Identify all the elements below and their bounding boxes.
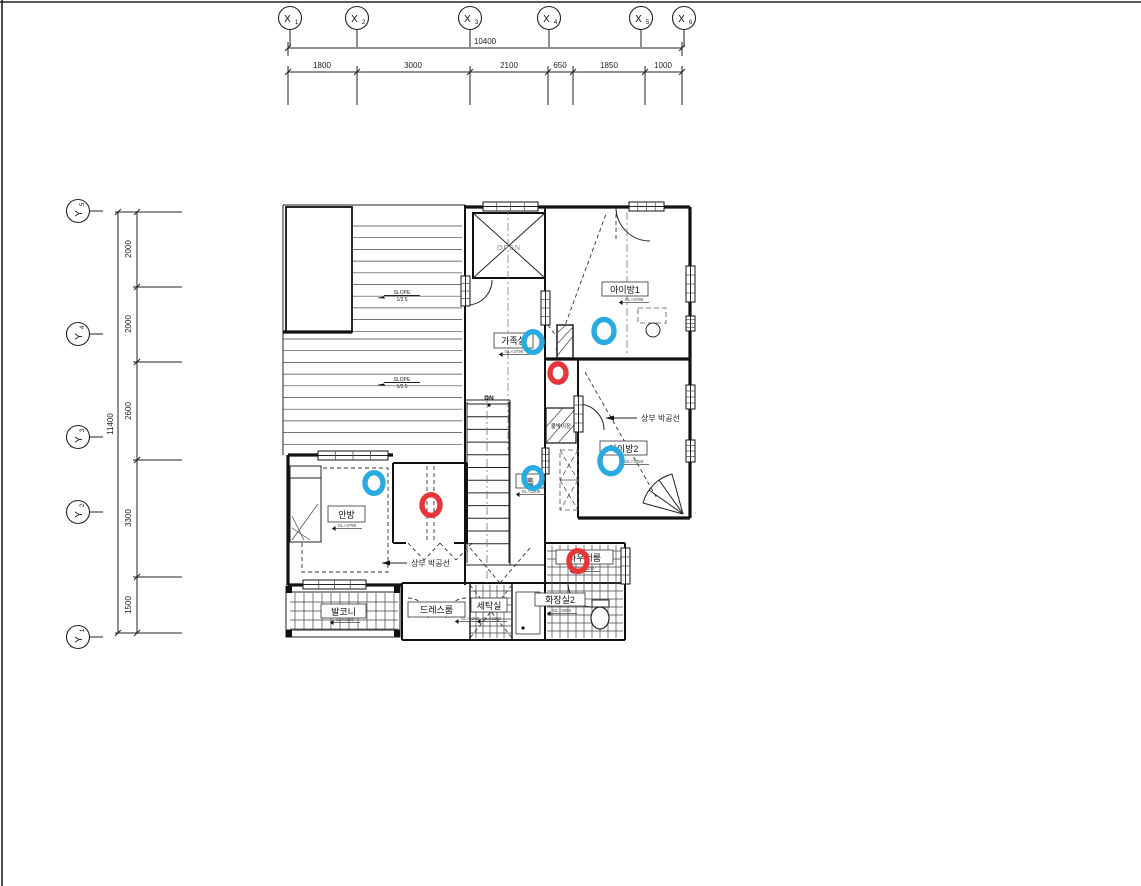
svg-text:Y: Y [74,210,85,217]
grid-bubble-x2: X2 [346,7,369,30]
gable-annotation-2: 상부 박공선 [382,558,450,568]
x-dim-seg-2: 3000 [404,61,422,70]
balcony-post [286,586,292,593]
closet-dashed [560,450,578,480]
svg-text:Y: Y [74,636,85,643]
svg-text:GL+3200: GL+3200 [461,616,480,621]
svg-text:X: X [635,14,642,25]
grid-bubble-y2: Y2 [67,501,90,524]
svg-text:드레스룸: 드레스룸 [420,605,453,615]
room-label-master-bedroom: 안방 [328,506,365,522]
grid-bubble-x3: X3 [459,7,482,30]
svg-text:Y: Y [74,511,85,518]
svg-text:GL+3200: GL+3200 [483,616,502,621]
svg-text:GL+3790: GL+3790 [625,297,644,302]
svg-text:상부 박공선: 상부 박공선 [411,558,450,568]
grid-bubble-y5: Y5 [67,200,90,223]
gable-line-dashed [585,372,658,500]
grid-bubble-x4: X4 [538,7,561,30]
svg-text:GL+3050: GL+3050 [553,608,572,613]
arrowhead [377,384,385,386]
svg-text:X: X [284,14,291,25]
x-dim-seg-1: 1800 [313,61,331,70]
x-grid: X1 X2 X3 X4 X5 X6 10400 1800 3000 2100 6… [279,7,696,106]
svg-text:GL+3790: GL+3790 [338,523,357,528]
x-dim-seg-6: 1000 [654,61,672,70]
floor-plan: 붙박이장 가족실 아이방1 아이방2 안방 드레스룸 발코니 세탁실 화장실2 … [283,202,695,640]
folding-door-arc [643,474,672,503]
svg-text:DN: DN [484,395,494,402]
level-mark-laundry: GL+3200 [477,616,507,624]
door-leaf-dashed [440,543,456,560]
closet-dashed [560,480,578,510]
grid-bubble-y3: Y3 [67,426,90,449]
svg-text:GL+3050: GL+3050 [625,459,644,464]
room-label-built-in-closet: 붙박이장 [551,422,571,430]
svg-text:1/2.5: 1/2.5 [396,297,407,303]
y-dim-seg-4: 3300 [124,509,133,527]
svg-text:아이방1: 아이방1 [610,285,640,295]
grid-bubble-x5: X5 [630,7,653,30]
grid-bubble-x1: X1 [279,7,302,30]
level-mark-kids-room-1: GL+3790 [619,297,649,305]
svg-text:X: X [351,14,358,25]
grid-bubble-x6: X6 [673,7,696,30]
desk-dashed [638,308,666,323]
roof-opening [286,207,352,332]
x-dim-total: 10400 [474,37,497,46]
arrowhead [382,561,390,566]
room-label-laundry: 세탁실 [471,598,507,612]
drain-dot [521,626,524,629]
balcony-post [394,586,400,593]
level-mark-master-bedroom: GL+3790 [332,523,362,531]
room-label-bathroom-2: 화장실2 [535,593,585,606]
grid-bubble-y1: Y1 [67,626,90,649]
balcony-rail-bottom [286,630,400,637]
dn-label: DN [484,395,494,407]
room-label-kids-room-1: 아이방1 [602,282,648,296]
arrowhead [377,297,385,299]
annotation-circle-red [550,364,566,382]
staircase [467,402,509,563]
room-label-dress-room: 드레스룸 [408,602,465,617]
y-grid-ticks [90,209,183,637]
y-dim-seg-1: 2000 [124,240,133,258]
svg-text:안방: 안방 [338,510,355,520]
svg-text:화장실2: 화장실2 [545,595,575,605]
chair [646,323,660,337]
grid-bubble-y4: Y4 [67,323,90,346]
x-dim-seg-3: 2100 [500,61,518,70]
floor-plan-drawing: X1 X2 X3 X4 X5 X6 10400 1800 3000 2100 6… [0,0,1141,886]
svg-text:상부 박공선: 상부 박공선 [641,413,680,423]
svg-text:세탁실: 세탁실 [477,600,502,611]
floor-plan-page: X1 X2 X3 X4 X5 X6 10400 1800 3000 2100 6… [0,0,1141,886]
room-label-balcony: 발코니 [321,604,366,618]
toilet-tank [592,600,609,607]
annotation-circle-blue [594,320,614,343]
door-leaf-dashed [424,543,440,560]
door-arc [616,207,650,241]
door-arc [467,280,492,305]
toilet [591,607,609,629]
svg-text:X: X [543,14,550,25]
y-dim-seg-5: 1500 [124,596,133,614]
svg-text:GL+3790: GL+3790 [505,349,524,354]
svg-text:X: X [464,14,471,25]
balcony-post [286,630,292,637]
svg-text:1/2.5: 1/2.5 [396,384,407,390]
x-dim-seg-4: 650 [553,61,567,70]
svg-text:X: X [678,14,685,25]
open-label: OPEN [497,245,521,252]
annotation-circle-red [422,495,440,516]
svg-text:Y: Y [74,333,85,340]
annotation-circle-blue [365,473,383,494]
svg-text:발코니: 발코니 [331,607,356,617]
svg-text:GL+3200: GL+3200 [336,617,355,622]
y-dim-seg-3: 2600 [124,402,133,420]
annotation-markers [365,320,622,572]
slope-annotation-2: SLOPE 1/2.5 [377,377,420,390]
y-dim-seg-2: 2000 [124,315,133,333]
bed [290,466,321,542]
balcony-post [394,630,400,637]
y-dim-total: 11400 [106,413,115,435]
door-leaf-dashed [408,543,424,560]
gable-annotation-1: 상부 박공선 [606,413,680,423]
x-dim-seg-5: 1850 [600,61,618,70]
svg-text:Y: Y [74,436,85,443]
y-grid: Y5 Y4 Y3 Y2 Y1 11400 2000 2000 2600 3300… [67,200,183,649]
